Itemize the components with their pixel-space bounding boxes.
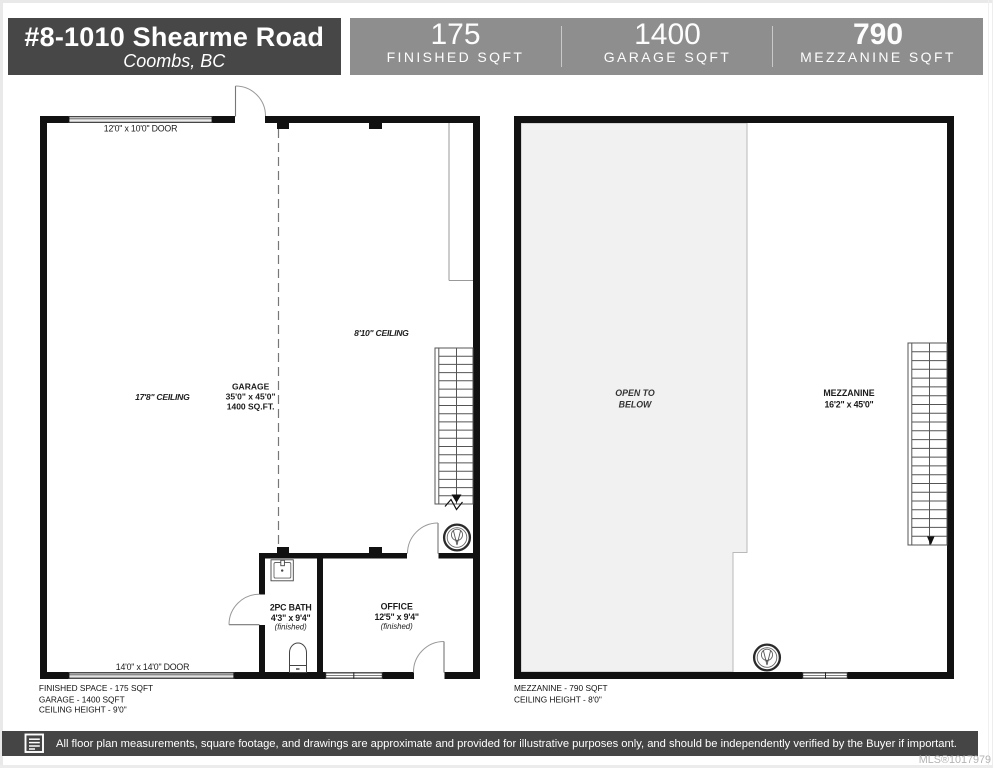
svg-text:12'5" x 9'4": 12'5" x 9'4"	[375, 612, 419, 622]
svg-text:GARAGE: GARAGE	[232, 381, 270, 391]
svg-text:(finished): (finished)	[381, 622, 413, 631]
svg-text:4'3" x 9'4": 4'3" x 9'4"	[271, 613, 311, 623]
svg-text:CEILING HEIGHT - 9'0": CEILING HEIGHT - 9'0"	[39, 705, 127, 715]
svg-text:17'8" CEILING: 17'8" CEILING	[135, 392, 190, 402]
svg-text:16'2" x 45'0": 16'2" x 45'0"	[824, 400, 873, 410]
svg-text:14'0" x 14'0" DOOR: 14'0" x 14'0" DOOR	[116, 662, 189, 672]
svg-text:BELOW: BELOW	[619, 400, 652, 410]
svg-text:(finished): (finished)	[275, 623, 307, 632]
svg-text:35'0" x 45'0": 35'0" x 45'0"	[226, 391, 276, 401]
svg-text:GARAGE - 1400 SQFT: GARAGE - 1400 SQFT	[39, 694, 125, 704]
svg-text:OFFICE: OFFICE	[381, 602, 413, 612]
svg-text:CEILING HEIGHT - 8'0": CEILING HEIGHT - 8'0"	[514, 694, 602, 704]
svg-text:1400 SQ.FT.: 1400 SQ.FT.	[227, 401, 275, 411]
svg-text:2PC BATH: 2PC BATH	[270, 602, 312, 612]
svg-text:MEZZANINE - 790 SQFT: MEZZANINE - 790 SQFT	[514, 683, 608, 693]
svg-text:12'0" x 10'0" DOOR: 12'0" x 10'0" DOOR	[104, 123, 177, 133]
svg-text:8'10" CEILING: 8'10" CEILING	[354, 328, 409, 338]
svg-text:OPEN TO: OPEN TO	[615, 388, 655, 398]
svg-text:FINISHED SPACE - 175 SQFT: FINISHED SPACE - 175 SQFT	[39, 683, 153, 693]
svg-text:MEZZANINE: MEZZANINE	[823, 388, 874, 398]
